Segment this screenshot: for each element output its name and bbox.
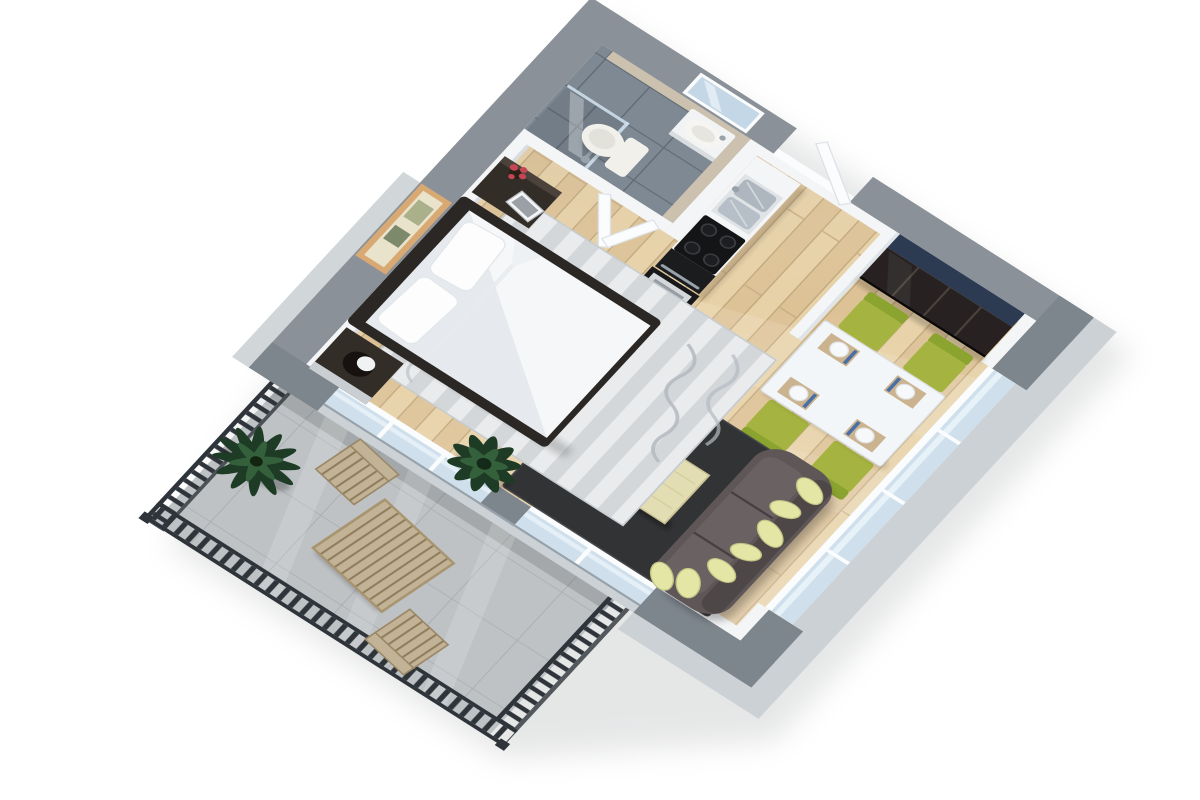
floor-plan-render [0, 0, 1200, 800]
floor-plan-svg [0, 0, 1200, 800]
